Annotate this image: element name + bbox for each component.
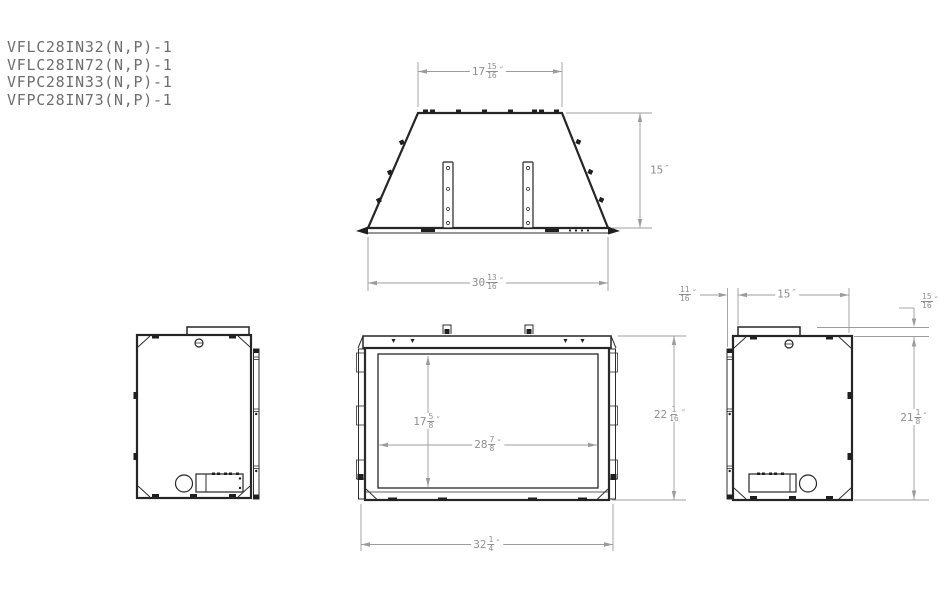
front-flange-slots	[421, 229, 589, 232]
mounting-bracket-right	[523, 162, 533, 228]
dim-fraction: 1516	[486, 63, 498, 79]
dim-whole: 17	[413, 416, 426, 427]
left-side-view	[134, 327, 260, 499]
dim-whole: 30	[472, 277, 485, 288]
inch-mark: ″	[499, 67, 504, 76]
gas-inlet-hole	[800, 475, 817, 492]
control-valve	[749, 473, 796, 493]
dim-fraction: 58	[428, 413, 435, 429]
inch-mark: ″	[499, 278, 504, 287]
dim-overall-width: 32 14 ″	[471, 536, 503, 552]
firebox-frame	[365, 348, 609, 500]
dim-fraction: 18	[915, 409, 922, 425]
dim-base-width: 30 1316 ″	[470, 274, 506, 290]
left-side-flange	[357, 349, 366, 499]
inch-mark: ″	[681, 410, 686, 419]
inch-mark: ″	[495, 540, 500, 549]
right-side-view	[727, 327, 852, 500]
inch-mark: ″	[791, 290, 796, 299]
dim-flange-offset: 1116 ″	[676, 286, 699, 302]
inch-mark: ″	[934, 297, 939, 306]
dim-whole: 28	[474, 439, 487, 450]
inch-mark: ″	[496, 440, 501, 449]
dim-fraction: 116	[668, 406, 680, 422]
dim-whole: 17	[472, 66, 485, 77]
dim-fraction: 1316	[486, 274, 498, 290]
front-view	[357, 325, 618, 501]
dim-fraction: 14	[488, 536, 495, 552]
screw	[195, 339, 203, 347]
top-standoff-tab	[738, 327, 800, 335]
dim-opening-width: 28 78 ″	[472, 436, 504, 452]
right-side-flange	[609, 349, 618, 499]
inch-mark: ″	[664, 166, 669, 175]
dim-body-height: 21 18 ″	[898, 409, 930, 425]
top-flange-band	[363, 336, 611, 348]
dim-fraction: 1116	[679, 286, 691, 302]
control-valve	[196, 473, 243, 493]
dim-whole: 15	[650, 165, 663, 176]
top-view-outline	[368, 113, 608, 228]
inch-mark: ″	[435, 417, 440, 426]
dim-body-depth: 15 ″	[775, 289, 799, 300]
dim-top-flange-height: 1516 ″	[918, 293, 941, 309]
top-standoff-tab	[187, 327, 249, 335]
dim-whole: 22	[654, 409, 667, 420]
dim-whole: 32	[473, 539, 486, 550]
dim-fraction: 78	[489, 436, 496, 452]
drawing-canvas: VFLC28IN32(N,P)-1 VFLC28IN72(N,P)-1 VFPC…	[0, 0, 950, 600]
mounting-bracket-left	[443, 162, 453, 228]
dim-fraction: 1516	[921, 293, 933, 309]
gas-inlet-hole	[176, 475, 193, 492]
technical-drawing	[0, 0, 950, 600]
dim-whole: 21	[900, 412, 913, 423]
front-flange-strip	[727, 349, 733, 499]
dim-opening-height: 17 58 ″	[411, 413, 443, 429]
dim-top-depth: 15 ″	[648, 165, 672, 176]
dim-top-width: 17 1516 ″	[470, 63, 506, 79]
dim-whole: 15	[777, 289, 790, 300]
top-view	[356, 110, 620, 235]
inch-mark: ″	[692, 290, 697, 299]
top-standoff-tabs	[443, 325, 533, 334]
screw	[785, 340, 793, 348]
dim-overall-height: 22 116 ″	[652, 406, 688, 422]
inch-mark: ″	[922, 413, 927, 422]
front-flange-strip	[254, 349, 260, 499]
